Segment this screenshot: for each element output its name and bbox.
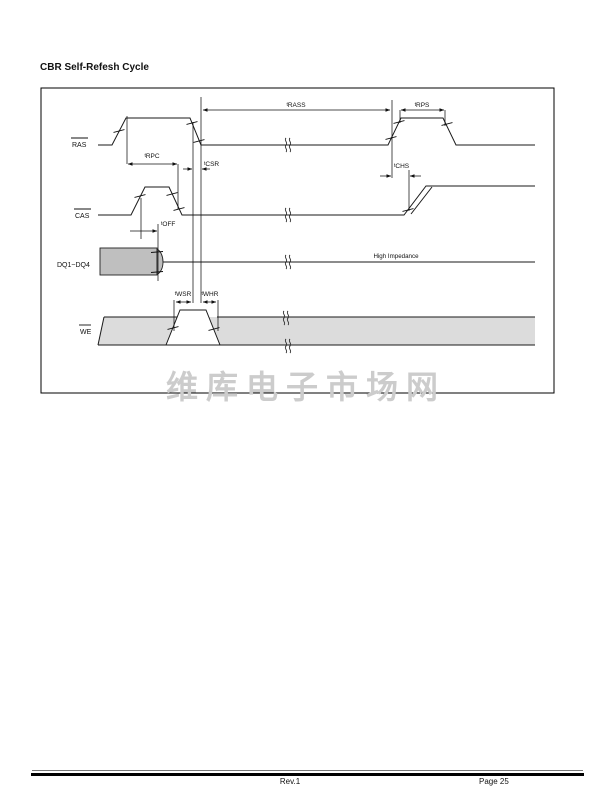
dq-waveform: DQ1~DQ4 High Impedance	[57, 248, 535, 275]
footer-rule-thick	[31, 773, 584, 776]
signal-label-cas: CAS	[75, 213, 90, 220]
timing-label-tchs: tCHS	[394, 163, 410, 170]
timing-label-trass: tRASS	[286, 102, 306, 109]
timing-label-tcsr: tCSR	[204, 161, 219, 168]
high-impedance-label: High Impedance	[373, 253, 419, 260]
timing-label-trps: tRPS	[415, 102, 430, 109]
signal-label-dq: DQ1~DQ4	[57, 262, 90, 269]
signal-label-ras: RAS	[72, 142, 87, 149]
ras-waveform	[98, 118, 535, 145]
we-dontcare-band	[98, 317, 535, 345]
dq-valid-data-block	[100, 248, 157, 275]
dimension-lines	[128, 110, 444, 302]
we-waveform: WE	[79, 310, 535, 345]
datasheet-page: CBR Self-Refesh Cycle RAS CAS	[0, 0, 612, 792]
watermark: 维库电子市场网	[9, 362, 603, 408]
timing-label-twsr: tWSR	[175, 291, 192, 298]
cas-waveform	[98, 186, 535, 215]
timing-labels: tRASS tRPS tRPC tCSR tCHS tOFF tWSR tWHR	[144, 102, 430, 298]
timing-label-toff: tOFF	[161, 221, 175, 228]
footer-page-number: Page 25	[479, 777, 509, 786]
signal-label-we: WE	[80, 329, 92, 336]
timing-label-twhr: tWHR	[202, 291, 219, 298]
footer-rule-thin	[32, 770, 583, 771]
footer-revision: Rev.1	[262, 777, 318, 786]
cas-label-group: CAS	[74, 209, 91, 220]
timing-label-trpc: tRPC	[144, 153, 159, 160]
ras-label-group: RAS	[71, 138, 88, 149]
